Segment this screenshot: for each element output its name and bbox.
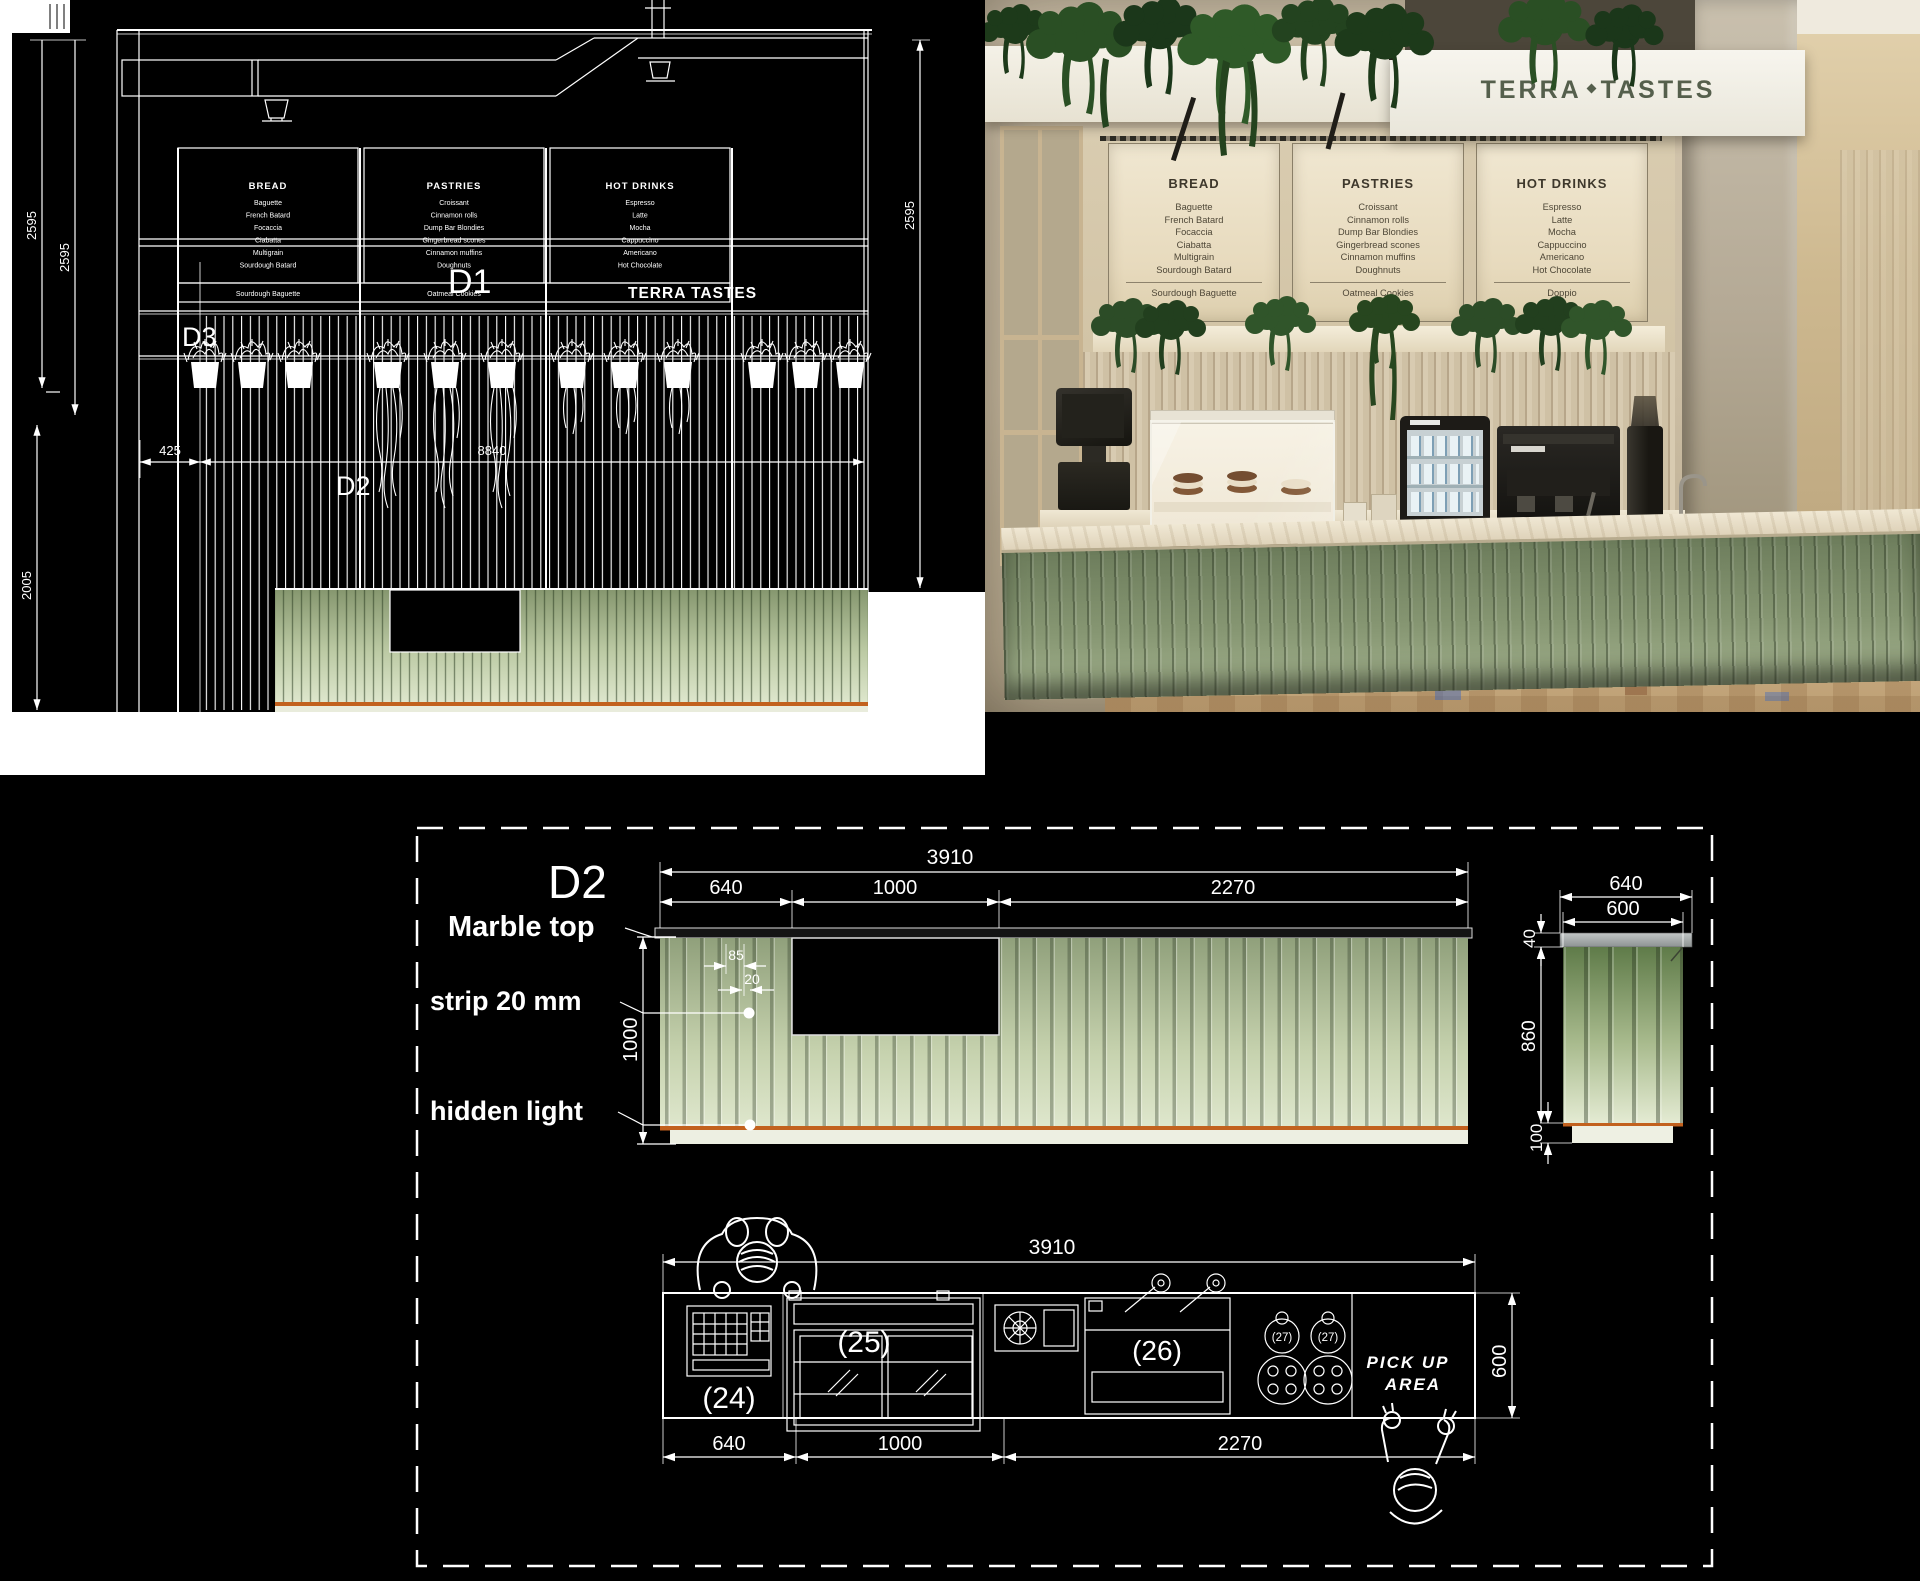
cad-counter xyxy=(275,589,868,712)
annotation-marble-top: Marble top xyxy=(448,911,595,943)
svg-text:(24): (24) xyxy=(702,1382,755,1415)
d2-front-elevation xyxy=(618,928,1472,1144)
plan-sink-unit xyxy=(995,1305,1078,1351)
pos-terminal xyxy=(1050,388,1140,520)
svg-text:Ciabatta: Ciabatta xyxy=(255,238,281,245)
svg-text:2595: 2595 xyxy=(57,243,72,272)
hanging-plants xyxy=(985,0,1795,170)
label-d1: D1 xyxy=(448,263,491,301)
svg-text:2270: 2270 xyxy=(1211,877,1256,899)
render-photo: BREAD Baguette French Batard Focaccia Ci… xyxy=(985,0,1920,712)
svg-text:1000: 1000 xyxy=(878,1433,923,1455)
counter-green-front xyxy=(1002,534,1920,700)
svg-text:AREA: AREA xyxy=(1384,1375,1441,1394)
plan-eq-25-display-case: (25) xyxy=(787,1291,980,1431)
elevation-light-strip xyxy=(660,1126,1468,1131)
svg-text:(25): (25) xyxy=(837,1326,890,1359)
svg-text:40: 40 xyxy=(1520,929,1539,948)
elevation-notch xyxy=(792,938,999,1035)
d2-detail-drawing: D2 Marble top strip 20 mm hidden light 3… xyxy=(400,820,1730,1581)
svg-text:(27): (27) xyxy=(1318,1332,1339,1344)
plan-person-customer xyxy=(1382,1403,1456,1524)
svg-text:860: 860 xyxy=(1519,1020,1540,1052)
svg-text:Cappuccino: Cappuccino xyxy=(622,238,659,245)
svg-text:Dump Bar Blondies: Dump Bar Blondies xyxy=(424,225,485,232)
svg-text:Croissant: Croissant xyxy=(439,200,469,207)
board-title: BREAD xyxy=(249,181,288,192)
bottle-fridge xyxy=(1400,416,1490,522)
svg-text:Latte: Latte xyxy=(632,213,648,220)
plan-eq-27-grinders: (27) (27) xyxy=(1258,1312,1352,1404)
svg-text:Cinnamon muffins: Cinnamon muffins xyxy=(426,250,483,257)
svg-text:20: 20 xyxy=(744,971,760,987)
board-title: BREAD xyxy=(1168,176,1219,191)
svg-text:3910: 3910 xyxy=(1029,1236,1076,1259)
svg-text:(26): (26) xyxy=(1132,1335,1182,1366)
d2-plan-view: (24) (25) xyxy=(663,1218,1475,1524)
d2-title: D2 xyxy=(548,856,607,908)
espresso-machine xyxy=(1497,426,1620,522)
annotation-hidden-light: hidden light xyxy=(430,1096,583,1126)
svg-text:Espresso: Espresso xyxy=(625,200,654,207)
label-d3: D3 xyxy=(182,322,217,352)
svg-text:85: 85 xyxy=(728,947,744,963)
plan-eq-24-register: (24) xyxy=(687,1306,771,1415)
svg-text:HOT DRINKS: HOT DRINKS xyxy=(605,181,674,192)
svg-text:(27): (27) xyxy=(1272,1332,1293,1344)
plan-person-staff xyxy=(698,1218,817,1298)
svg-text:425: 425 xyxy=(159,443,181,458)
svg-text:1000: 1000 xyxy=(873,877,918,899)
cad-brand-logo: TERRA TASTES xyxy=(628,285,757,302)
svg-text:2005: 2005 xyxy=(19,571,34,600)
svg-text:2595: 2595 xyxy=(902,201,917,230)
plan-eq-26-espresso: (26) xyxy=(1085,1274,1230,1414)
svg-text:640: 640 xyxy=(1609,873,1642,895)
svg-text:PASTRIES: PASTRIES xyxy=(427,181,482,192)
page: BREAD Baguette French Batard Focaccia Ci… xyxy=(0,0,1920,1581)
annotation-strip: strip 20 mm xyxy=(430,986,582,1016)
svg-text:3910: 3910 xyxy=(927,846,974,869)
cad-counter-notch xyxy=(390,590,520,652)
svg-text:Mocha: Mocha xyxy=(629,225,650,232)
svg-text:Hot Chocolate: Hot Chocolate xyxy=(618,263,662,270)
svg-text:600: 600 xyxy=(1606,898,1639,920)
svg-text:Americano: Americano xyxy=(623,250,657,257)
svg-text:640: 640 xyxy=(709,877,742,899)
plan-pickup-area: PICK UP AREA xyxy=(1367,1353,1450,1394)
svg-text:PICK UP: PICK UP xyxy=(1367,1353,1450,1372)
svg-text:French Batard: French Batard xyxy=(246,213,290,220)
svg-text:8840: 8840 xyxy=(478,443,507,458)
label-d2-small: D2 xyxy=(336,471,371,501)
svg-text:Baguette: Baguette xyxy=(254,200,282,207)
coffee-grinder xyxy=(1625,396,1665,522)
cad-hidden-light-strip xyxy=(275,702,868,706)
svg-text:1000: 1000 xyxy=(620,1018,642,1063)
svg-text:640: 640 xyxy=(712,1433,745,1455)
svg-text:2595: 2595 xyxy=(24,211,39,240)
svg-text:Sourdough Batard: Sourdough Batard xyxy=(240,263,297,270)
render-counter xyxy=(1001,509,1920,700)
svg-text:600: 600 xyxy=(1489,1345,1511,1378)
d2-side-section xyxy=(1560,933,1692,1143)
svg-text:Gingerbread scones: Gingerbread scones xyxy=(422,238,486,245)
svg-text:Multigrain: Multigrain xyxy=(253,250,283,257)
svg-text:Focaccia: Focaccia xyxy=(254,225,282,232)
svg-text:2270: 2270 xyxy=(1218,1433,1263,1455)
svg-text:Cinnamon rolls: Cinnamon rolls xyxy=(431,213,478,220)
svg-text:100: 100 xyxy=(1527,1124,1546,1152)
d2-plan-dims: 3910 640 1000 2270 600 xyxy=(663,1236,1520,1464)
cad-elevation-sheet: BREAD Baguette French Batard Focaccia Ci… xyxy=(0,0,985,775)
board-bottom-item: Sourdough Baguette xyxy=(236,291,300,298)
